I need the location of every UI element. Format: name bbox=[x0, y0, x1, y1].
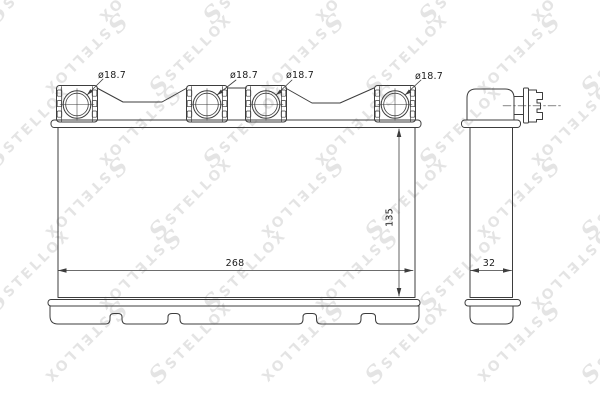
port-3-diameter-label: ø18.7 bbox=[283, 70, 317, 81]
port-1-diameter-label: ø18.7 bbox=[95, 70, 129, 81]
port-2-diameter-label: ø18.7 bbox=[227, 70, 261, 81]
core-depth-label: 32 bbox=[472, 258, 506, 269]
dimension-labels: ø18.7 ø18.7 ø18.7 ø18.7 268 135 32 bbox=[0, 0, 600, 400]
port-4-diameter-label: ø18.7 bbox=[412, 71, 446, 82]
core-width-label: 268 bbox=[218, 258, 252, 269]
core-height-label: 135 bbox=[385, 201, 396, 235]
part-technical-drawing: SSTELLOXSSTELLOXSSTELLOXSSTELLOXSSTELLOX… bbox=[0, 0, 600, 400]
